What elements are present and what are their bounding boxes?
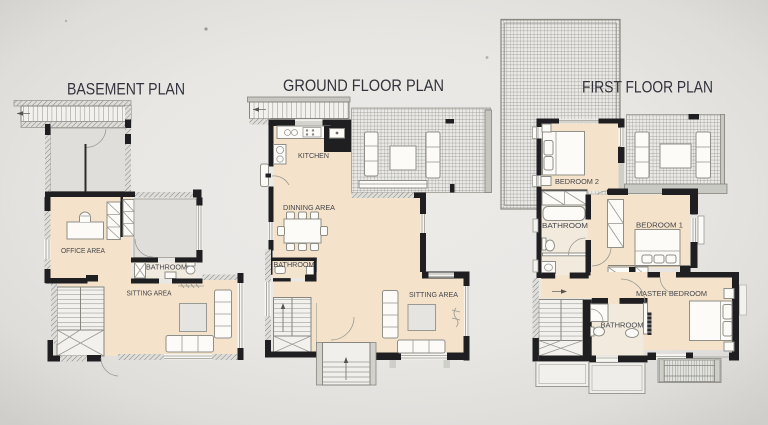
- svg-text:BATHROOM: BATHROOM: [601, 321, 644, 330]
- svg-text:GROUND FLOOR PLAN: GROUND FLOOR PLAN: [283, 76, 444, 95]
- svg-text:BEDROOM 1: BEDROOM 1: [636, 221, 683, 230]
- svg-text:DINNING AREA: DINNING AREA: [283, 203, 336, 212]
- svg-text:SITTING AREA: SITTING AREA: [409, 290, 459, 299]
- svg-text:BATHROOM: BATHROOM: [146, 263, 187, 272]
- svg-text:KITCHEN: KITCHEN: [298, 151, 329, 160]
- svg-text:OFFICE AREA: OFFICE AREA: [61, 246, 106, 255]
- svg-text:BASEMENT PLAN: BASEMENT PLAN: [67, 80, 185, 99]
- svg-text:FIRST FLOOR PLAN: FIRST FLOOR PLAN: [582, 78, 713, 97]
- svg-text:SITTING AREA: SITTING AREA: [127, 289, 173, 298]
- svg-text:BATHROOM: BATHROOM: [542, 221, 588, 230]
- svg-text:BEDROOM 2: BEDROOM 2: [555, 177, 599, 186]
- svg-text:BATHROOM: BATHROOM: [274, 260, 315, 269]
